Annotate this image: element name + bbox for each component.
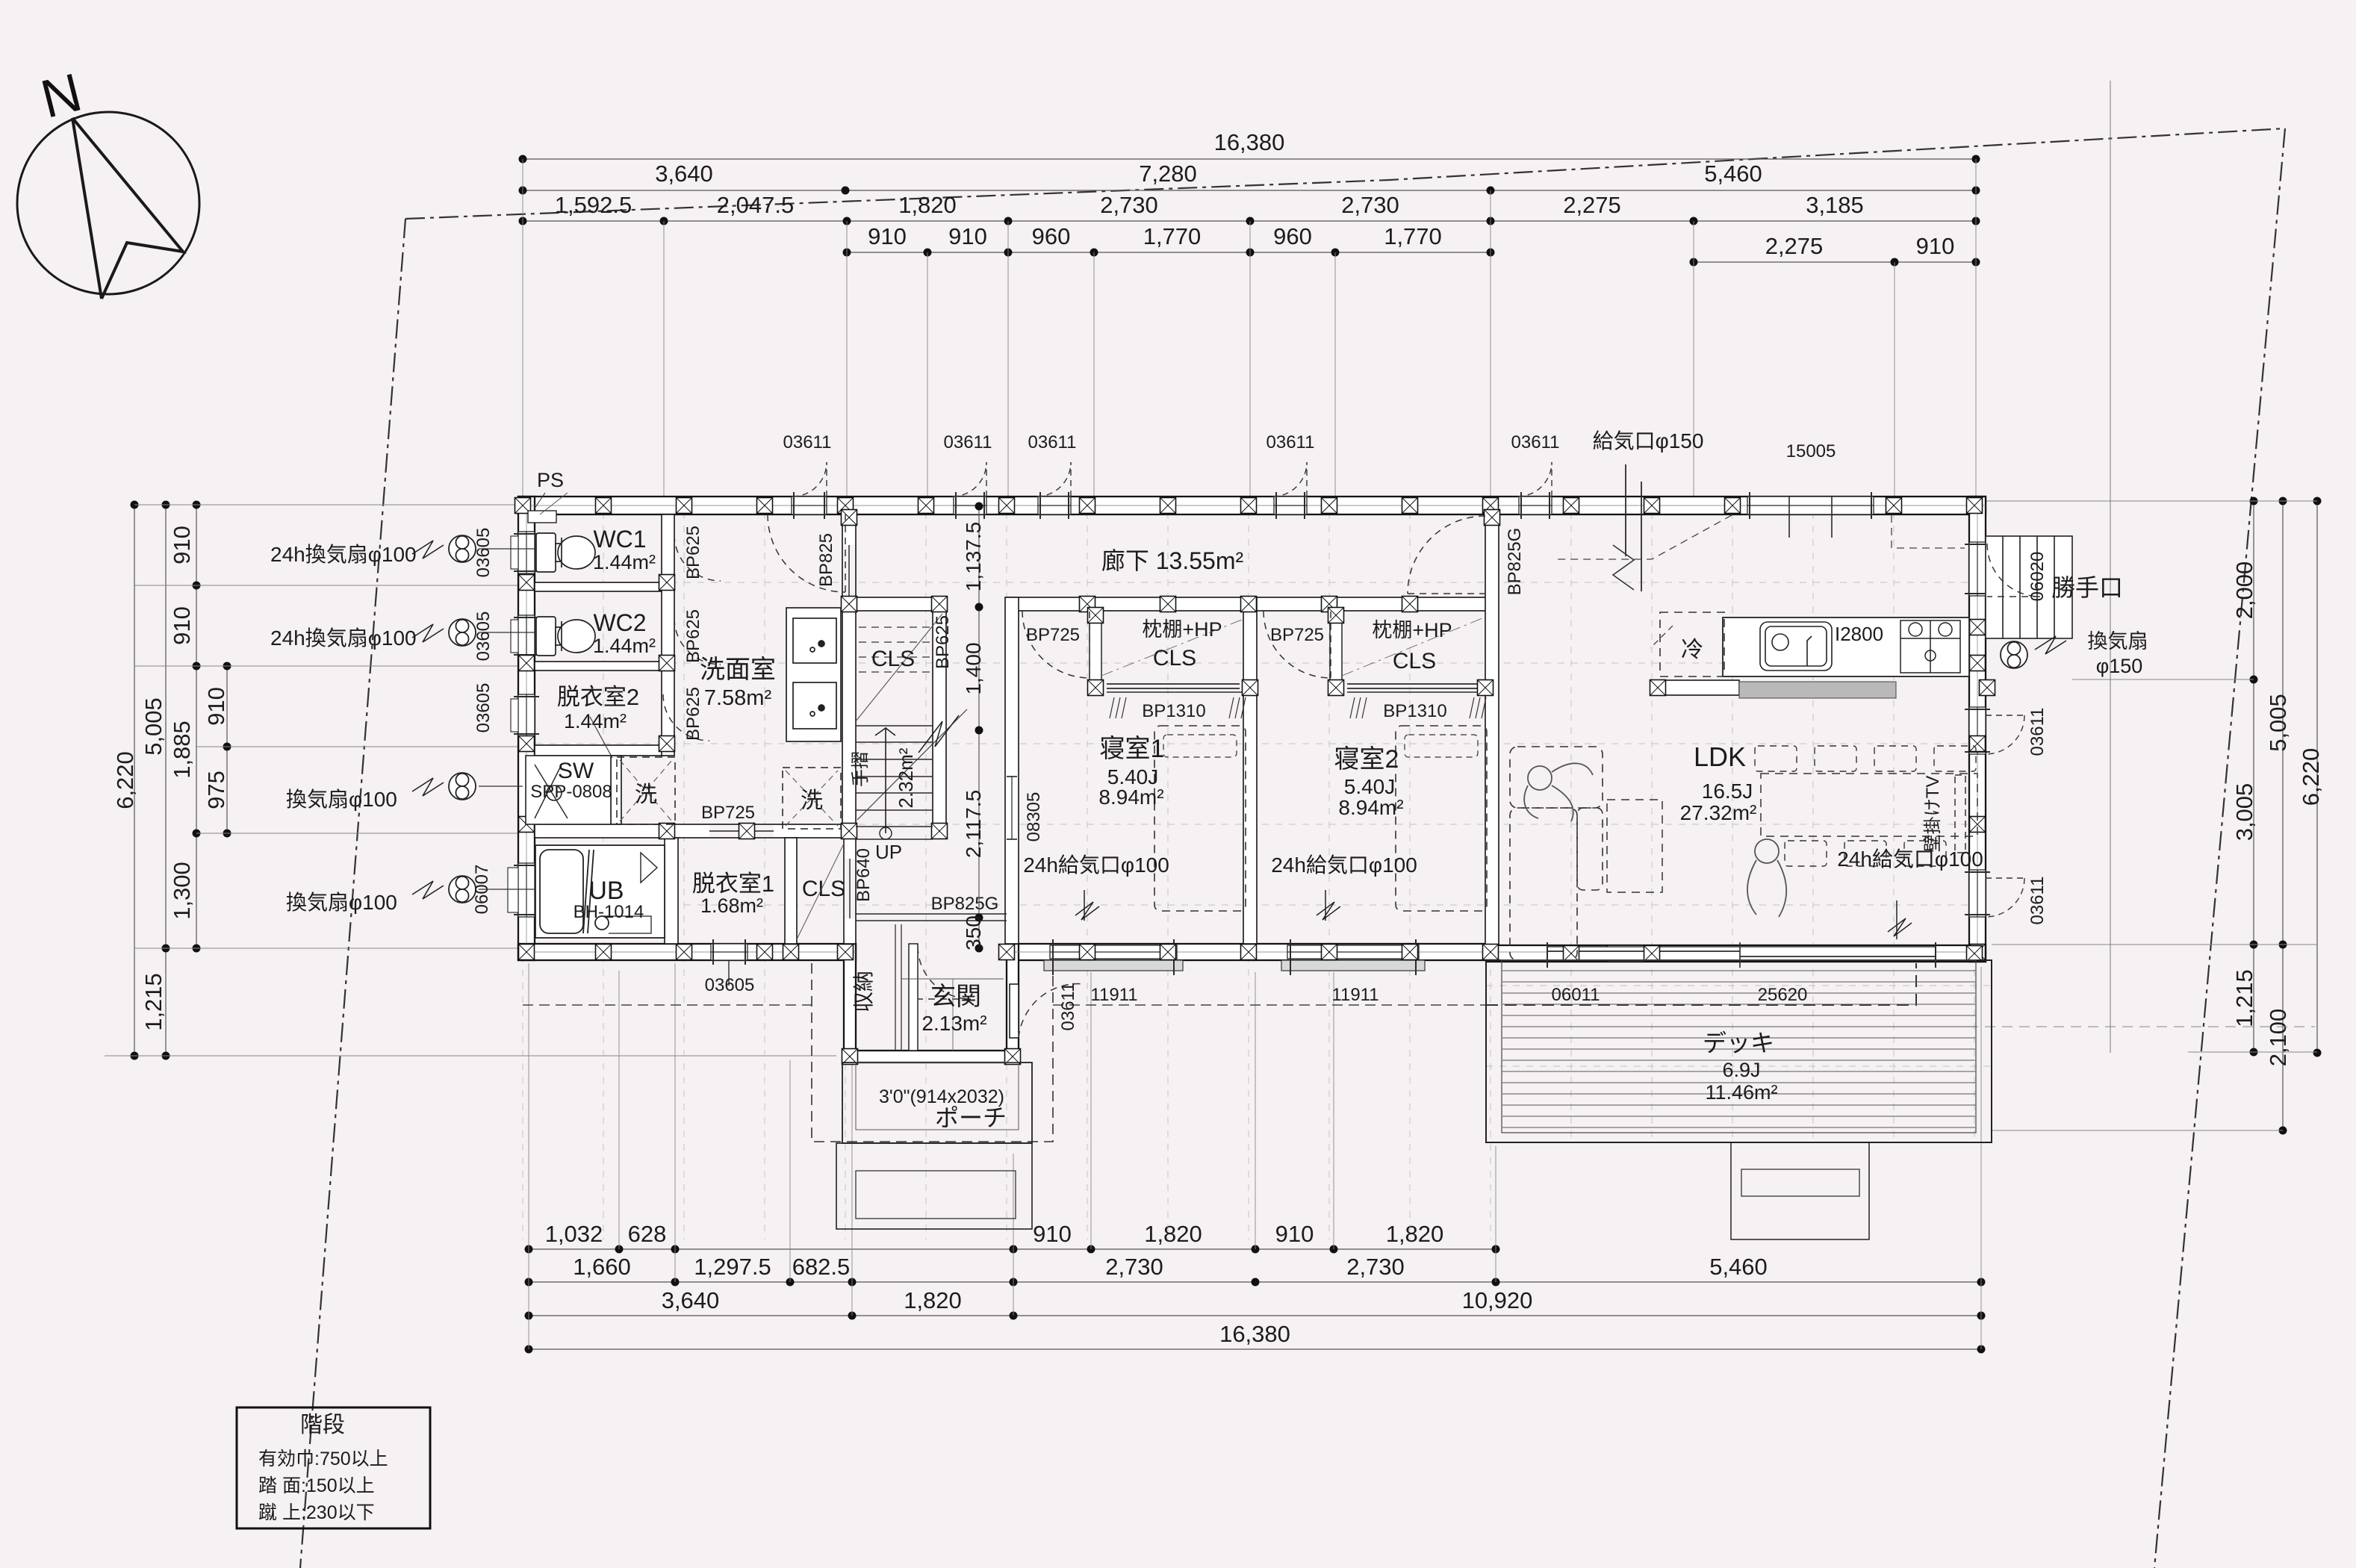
svg-text:BP1310: BP1310: [1383, 701, 1446, 721]
svg-text:1.44m²: 1.44m²: [564, 710, 627, 732]
svg-text:換気扇: 換気扇: [2088, 630, 2148, 653]
svg-text:2,730: 2,730: [1100, 192, 1158, 218]
svg-text:960: 960: [1032, 223, 1071, 249]
svg-text:洗: 洗: [635, 783, 657, 807]
svg-text:I2800: I2800: [1835, 623, 1883, 645]
svg-text:給気口φ150: 給気口φ150: [1593, 429, 1704, 452]
svg-text:03611: 03611: [1028, 432, 1077, 452]
svg-text:2,000: 2,000: [2231, 561, 2257, 620]
svg-text:寝室2: 寝室2: [1334, 745, 1399, 774]
svg-text:03605: 03605: [473, 683, 494, 733]
svg-text:2,047.5: 2,047.5: [717, 192, 794, 218]
svg-text:16,380: 16,380: [1219, 1321, 1290, 1347]
svg-text:BP825G: BP825G: [1505, 528, 1525, 596]
svg-text:1,770: 1,770: [1384, 223, 1442, 249]
svg-text:UP: UP: [875, 841, 902, 863]
svg-text:2,117.5: 2,117.5: [962, 790, 985, 858]
svg-text:1,820: 1,820: [898, 192, 957, 218]
svg-text:枕棚+HP: 枕棚+HP: [1142, 618, 1222, 641]
svg-text:φ150: φ150: [2096, 655, 2143, 677]
svg-text:1,660: 1,660: [573, 1254, 631, 1280]
svg-text:7.58m²: 7.58m²: [704, 686, 772, 710]
svg-text:玄関: 玄関: [930, 983, 981, 1011]
svg-text:06020: 06020: [2027, 552, 2048, 602]
svg-text:収納: 収納: [852, 971, 875, 1012]
svg-text:15005: 15005: [1786, 441, 1836, 461]
svg-text:BP625: BP625: [683, 526, 703, 579]
svg-text:BP625: BP625: [933, 615, 953, 669]
svg-text:03611: 03611: [783, 432, 832, 452]
svg-text:3,005: 3,005: [2231, 783, 2257, 841]
svg-text:06011: 06011: [1552, 985, 1600, 1005]
svg-text:910: 910: [169, 606, 195, 645]
svg-text:27.32m²: 27.32m²: [1680, 801, 1757, 824]
svg-text:24h換気扇φ100: 24h換気扇φ100: [270, 626, 417, 650]
svg-text:BP640: BP640: [854, 848, 874, 902]
svg-text:24h給気口φ100: 24h給気口φ100: [1023, 853, 1169, 877]
svg-text:910: 910: [1275, 1221, 1314, 1247]
svg-text:洗面室: 洗面室: [700, 656, 776, 684]
svg-text:7,280: 7,280: [1139, 161, 1197, 187]
svg-text:910: 910: [169, 526, 195, 564]
svg-text:CLS: CLS: [871, 647, 915, 671]
svg-text:03611: 03611: [2027, 877, 2048, 925]
svg-text:5,460: 5,460: [1704, 161, 1762, 187]
svg-text:16,380: 16,380: [1214, 129, 1285, 155]
svg-text:BP625: BP625: [683, 687, 703, 741]
svg-text:03605: 03605: [473, 528, 494, 578]
svg-text:1,400: 1,400: [962, 642, 985, 694]
svg-text:廊下 13.55m²: 廊下 13.55m²: [1101, 547, 1244, 574]
svg-text:1,297.5: 1,297.5: [694, 1254, 771, 1280]
svg-text:24h給気口φ100: 24h給気口φ100: [1271, 853, 1417, 877]
svg-text:2.13m²: 2.13m²: [921, 1012, 986, 1035]
svg-text:910: 910: [1033, 1221, 1072, 1247]
svg-text:階段: 階段: [300, 1413, 345, 1437]
svg-text:踏 面:150以上: 踏 面:150以上: [258, 1475, 375, 1496]
svg-text:換気扇φ100: 換気扇φ100: [286, 891, 397, 914]
svg-text:10,920: 10,920: [1462, 1287, 1533, 1313]
svg-text:910: 910: [948, 223, 987, 249]
svg-text:1,885: 1,885: [169, 721, 195, 779]
svg-text:960: 960: [1273, 223, 1312, 249]
svg-text:1,820: 1,820: [1386, 1221, 1444, 1247]
svg-text:脱衣室1: 脱衣室1: [692, 871, 774, 897]
svg-text:BP1310: BP1310: [1142, 701, 1205, 721]
svg-text:BP725: BP725: [1026, 625, 1080, 645]
svg-text:8.94m²: 8.94m²: [1338, 796, 1403, 819]
svg-text:換気扇φ100: 換気扇φ100: [286, 788, 397, 811]
svg-text:勝手口: 勝手口: [2051, 574, 2123, 601]
svg-text:6,220: 6,220: [112, 751, 138, 809]
svg-text:5.40J: 5.40J: [1344, 775, 1396, 798]
svg-text:1,300: 1,300: [169, 862, 195, 920]
svg-text:3,640: 3,640: [655, 161, 713, 187]
svg-text:冷: 冷: [1681, 638, 1703, 662]
svg-text:寝室1: 寝室1: [1100, 735, 1165, 763]
svg-text:628: 628: [628, 1221, 667, 1247]
svg-text:6.9J: 6.9J: [1722, 1059, 1760, 1081]
svg-text:1,137.5: 1,137.5: [962, 522, 985, 591]
svg-text:03611: 03611: [2027, 708, 2048, 756]
svg-text:BP825: BP825: [816, 533, 836, 587]
svg-text:1,032: 1,032: [545, 1221, 603, 1247]
svg-text:25620: 25620: [1758, 985, 1808, 1005]
svg-text:2,275: 2,275: [1765, 233, 1824, 259]
svg-text:BP625: BP625: [683, 609, 703, 663]
svg-text:08305: 08305: [1024, 792, 1044, 842]
svg-text:WC1: WC1: [593, 526, 646, 553]
svg-text:BP725: BP725: [1270, 625, 1324, 645]
svg-text:6,220: 6,220: [2298, 748, 2324, 806]
svg-text:壁掛けTV: 壁掛けTV: [1923, 776, 1943, 853]
svg-text:8.94m²: 8.94m²: [1098, 785, 1163, 809]
svg-text:枕棚+HP: 枕棚+HP: [1372, 619, 1452, 641]
svg-text:5,460: 5,460: [1709, 1254, 1768, 1280]
svg-text:682.5: 682.5: [792, 1254, 851, 1280]
svg-text:910: 910: [868, 223, 907, 249]
svg-text:24h換気扇φ100: 24h換気扇φ100: [270, 543, 417, 566]
svg-text:1,770: 1,770: [1143, 223, 1202, 249]
svg-text:脱衣室2: 脱衣室2: [557, 684, 639, 710]
svg-text:11911: 11911: [1331, 985, 1379, 1005]
svg-text:蹴 上:230以下: 蹴 上:230以下: [258, 1502, 375, 1523]
svg-text:06007: 06007: [472, 865, 492, 915]
svg-text:03611: 03611: [1511, 432, 1560, 452]
svg-text:WC2: WC2: [593, 609, 646, 636]
svg-text:CLS: CLS: [802, 877, 845, 901]
svg-text:BP825G: BP825G: [931, 894, 999, 914]
svg-text:350: 350: [962, 915, 985, 951]
svg-text:1,820: 1,820: [1144, 1221, 1202, 1247]
svg-text:03611: 03611: [944, 432, 992, 452]
svg-text:03605: 03605: [473, 612, 494, 662]
svg-text:16.5J: 16.5J: [1702, 780, 1753, 803]
svg-text:5,005: 5,005: [2265, 694, 2291, 752]
svg-text:03605: 03605: [705, 975, 755, 995]
svg-text:11911: 11911: [1090, 985, 1137, 1005]
svg-text:910: 910: [203, 687, 229, 726]
svg-text:5,005: 5,005: [140, 697, 167, 756]
svg-text:CLS: CLS: [1153, 646, 1196, 671]
svg-text:ポーチ: ポーチ: [935, 1104, 1007, 1131]
svg-text:1.68m²: 1.68m²: [700, 895, 763, 917]
svg-text:1.44m²: 1.44m²: [593, 551, 656, 573]
svg-text:11.46m²: 11.46m²: [1705, 1081, 1777, 1104]
svg-text:UB: UB: [588, 877, 624, 905]
svg-text:24h給気口φ100: 24h給気口φ100: [1837, 847, 1983, 871]
svg-text:2,275: 2,275: [1563, 192, 1621, 218]
svg-text:2,730: 2,730: [1341, 192, 1399, 218]
svg-text:2,730: 2,730: [1346, 1254, 1405, 1280]
svg-text:03611: 03611: [1266, 432, 1315, 452]
svg-text:910: 910: [1916, 233, 1955, 259]
svg-text:3,640: 3,640: [662, 1287, 720, 1313]
svg-text:1,592.5: 1,592.5: [555, 192, 632, 218]
svg-text:BH-1014: BH-1014: [574, 902, 644, 922]
svg-text:洗: 洗: [801, 788, 823, 813]
svg-text:CLS: CLS: [1393, 649, 1436, 673]
svg-text:PS: PS: [537, 469, 564, 491]
svg-text:03611: 03611: [1058, 983, 1078, 1031]
svg-text:SW: SW: [558, 759, 594, 783]
svg-text:1,820: 1,820: [904, 1287, 962, 1313]
svg-text:LDK: LDK: [1694, 741, 1746, 772]
svg-text:2,100: 2,100: [2265, 1009, 2291, 1067]
svg-text:SPP-0808: SPP-0808: [530, 782, 612, 802]
svg-text:2.32m²: 2.32m²: [895, 747, 917, 808]
svg-text:1.44m²: 1.44m²: [593, 635, 656, 657]
svg-text:デッキ: デッキ: [1703, 1030, 1774, 1057]
svg-text:1,215: 1,215: [2231, 969, 2257, 1027]
svg-text:975: 975: [203, 771, 229, 809]
svg-text:手摺: 手摺: [851, 751, 871, 787]
svg-text:有効巾:750以上: 有効巾:750以上: [258, 1449, 388, 1469]
svg-text:2,730: 2,730: [1105, 1254, 1163, 1280]
svg-text:1,215: 1,215: [140, 973, 167, 1031]
svg-text:3,185: 3,185: [1806, 192, 1864, 218]
svg-text:BP725: BP725: [701, 803, 755, 823]
